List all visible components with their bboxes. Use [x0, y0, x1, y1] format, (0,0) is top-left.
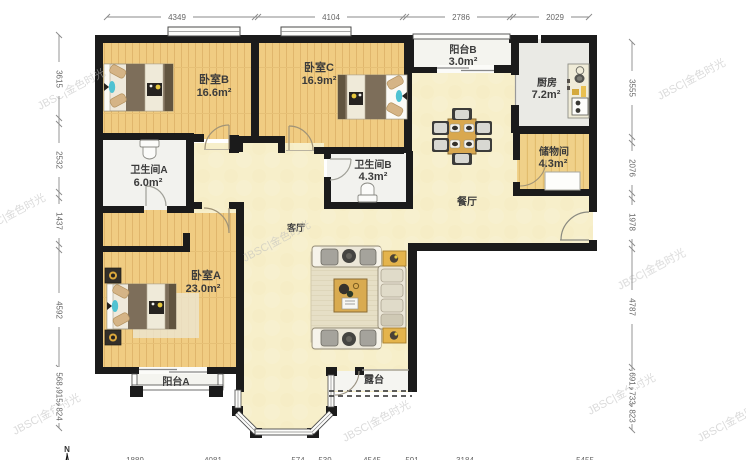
- svg-text:824: 824: [55, 407, 64, 421]
- svg-text:568: 568: [55, 372, 64, 386]
- svg-text:591: 591: [405, 456, 419, 460]
- svg-text:厨房: 厨房: [537, 76, 557, 89]
- svg-text:露台: 露台: [364, 373, 384, 386]
- svg-text:2786: 2786: [452, 13, 470, 22]
- svg-text:储物间: 储物间: [538, 145, 569, 158]
- svg-text:阳台B: 阳台B: [449, 43, 476, 56]
- svg-text:733: 733: [628, 391, 637, 405]
- svg-text:23.0m²: 23.0m²: [186, 283, 221, 295]
- svg-text:3.0m²: 3.0m²: [449, 56, 478, 68]
- svg-text:16.9m²: 16.9m²: [302, 75, 337, 87]
- svg-text:823: 823: [628, 409, 637, 423]
- svg-text:3184: 3184: [456, 456, 474, 460]
- svg-text:4104: 4104: [322, 13, 340, 22]
- svg-text:691: 691: [628, 372, 637, 386]
- svg-text:539: 539: [318, 456, 332, 460]
- svg-text:16.6m²: 16.6m²: [197, 87, 232, 99]
- svg-text:4349: 4349: [168, 13, 186, 22]
- svg-text:阳台A: 阳台A: [162, 375, 189, 388]
- svg-text:915: 915: [55, 389, 64, 403]
- svg-text:3615: 3615: [55, 70, 64, 88]
- svg-text:7.2m²: 7.2m²: [532, 89, 561, 101]
- svg-text:5455: 5455: [576, 456, 594, 460]
- svg-text:4.3m²: 4.3m²: [359, 171, 388, 183]
- svg-text:1978: 1978: [628, 213, 637, 231]
- svg-text:4081: 4081: [204, 456, 222, 460]
- svg-text:3555: 3555: [628, 79, 637, 97]
- svg-text:4.3m²: 4.3m²: [539, 158, 568, 170]
- svg-text:4787: 4787: [628, 298, 637, 316]
- svg-text:卫生间A: 卫生间A: [130, 163, 167, 176]
- svg-text:卧室C: 卧室C: [304, 60, 334, 74]
- svg-text:卫生间B: 卫生间B: [354, 158, 391, 171]
- svg-text:2076: 2076: [628, 159, 637, 177]
- svg-text:574: 574: [291, 456, 305, 460]
- svg-text:2029: 2029: [546, 13, 564, 22]
- svg-text:4592: 4592: [55, 301, 64, 319]
- svg-text:6.0m²: 6.0m²: [134, 177, 163, 189]
- svg-text:4545: 4545: [363, 456, 381, 460]
- svg-text:卧室B: 卧室B: [199, 72, 229, 86]
- svg-text:餐厅: 餐厅: [456, 195, 477, 208]
- svg-text:2532: 2532: [55, 151, 64, 169]
- svg-text:卧室A: 卧室A: [191, 268, 221, 282]
- svg-text:1437: 1437: [55, 212, 64, 230]
- svg-text:N: N: [64, 445, 70, 454]
- svg-text:1889: 1889: [126, 456, 144, 460]
